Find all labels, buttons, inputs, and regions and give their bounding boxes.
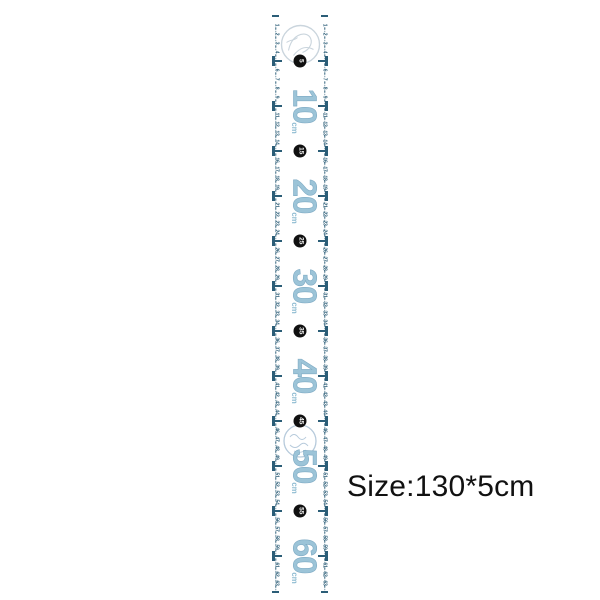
five-cm-tick-stem bbox=[318, 510, 326, 513]
five-cm-tick-stem bbox=[318, 330, 326, 333]
five-cm-circle-marker: 5 bbox=[294, 55, 307, 68]
edge-cm-number: 7 bbox=[274, 78, 279, 80]
circle-marker-number: 15 bbox=[297, 147, 304, 154]
circle-marker-number: 45 bbox=[297, 417, 304, 424]
five-cm-tick-stem bbox=[274, 285, 282, 288]
five-cm-circle-marker: 15 bbox=[294, 145, 307, 158]
five-cm-tick-crossbar bbox=[325, 146, 328, 156]
five-cm-circle-marker: 25 bbox=[294, 235, 307, 248]
five-cm-circle-marker: 35 bbox=[294, 325, 307, 338]
circle-marker-number: 55 bbox=[297, 507, 304, 514]
five-cm-tick-crossbar bbox=[325, 461, 328, 471]
five-cm-circle-marker: 45 bbox=[294, 415, 307, 428]
five-cm-tick-stem bbox=[274, 465, 282, 468]
size-label: Size:130*5cm bbox=[347, 472, 535, 502]
big-cm-number: 20 bbox=[289, 179, 322, 214]
five-cm-tick-stem bbox=[274, 420, 282, 423]
edge-cm-number: 1 bbox=[274, 24, 279, 26]
five-cm-tick-stem bbox=[274, 330, 282, 333]
big-cm-number: 60 bbox=[289, 539, 322, 574]
five-cm-tick-stem bbox=[318, 240, 326, 243]
edge-cm-number: 6 bbox=[322, 69, 327, 71]
edge-cm-number: 2 bbox=[274, 33, 279, 35]
five-cm-tick-crossbar bbox=[325, 551, 328, 561]
five-cm-tick-stem bbox=[274, 195, 282, 198]
five-cm-tick-crossbar bbox=[325, 191, 328, 201]
five-cm-tick-crossbar bbox=[325, 506, 328, 516]
cm-unit-label: cm bbox=[290, 482, 298, 494]
five-cm-tick-stem bbox=[318, 420, 326, 423]
edge-cm-number: 3 bbox=[322, 42, 327, 44]
circle-marker-number: 5 bbox=[297, 59, 304, 63]
cm-unit-label: cm bbox=[290, 572, 298, 584]
five-cm-tick-stem bbox=[274, 60, 282, 63]
cm-unit-label: cm bbox=[290, 122, 298, 134]
big-cm-number: 30 bbox=[289, 269, 322, 304]
strip-end-tick bbox=[321, 15, 328, 17]
edge-cm-number: 4 bbox=[274, 51, 279, 53]
five-cm-circle-marker: 55 bbox=[294, 505, 307, 518]
circle-marker-number: 25 bbox=[297, 237, 304, 244]
five-cm-tick-crossbar bbox=[325, 371, 328, 381]
edge-cm-number: 7 bbox=[322, 78, 327, 80]
edge-cm-number: 6 bbox=[274, 69, 279, 71]
big-cm-number: 10 bbox=[289, 89, 322, 124]
five-cm-tick-stem bbox=[318, 60, 326, 63]
strip-end-tick bbox=[272, 591, 279, 593]
cm-unit-label: cm bbox=[290, 392, 298, 404]
strip-end-tick bbox=[321, 591, 328, 593]
five-cm-tick-crossbar bbox=[325, 236, 328, 246]
five-cm-tick-stem bbox=[274, 150, 282, 153]
five-cm-tick-crossbar bbox=[325, 416, 328, 426]
five-cm-tick-crossbar bbox=[325, 56, 328, 66]
cm-unit-label: cm bbox=[290, 212, 298, 224]
ruler-strip: 1122334466778899111112121313141416161717… bbox=[269, 16, 331, 594]
five-cm-tick-stem bbox=[274, 105, 282, 108]
edge-cm-number: 8 bbox=[274, 87, 279, 89]
five-cm-tick-stem bbox=[274, 375, 282, 378]
five-cm-tick-crossbar bbox=[325, 281, 328, 291]
product-image: 1122334466778899111112121313141416161717… bbox=[0, 0, 600, 600]
edge-cm-number: 9 bbox=[274, 96, 279, 98]
circle-marker-number: 35 bbox=[297, 327, 304, 334]
big-cm-number: 40 bbox=[289, 359, 322, 394]
strip-end-tick bbox=[272, 15, 279, 17]
cm-unit-label: cm bbox=[290, 302, 298, 314]
edge-cm-number: 4 bbox=[322, 51, 327, 53]
five-cm-tick-stem bbox=[274, 240, 282, 243]
edge-cm-number: 2 bbox=[322, 33, 327, 35]
edge-cm-number: 1 bbox=[322, 24, 327, 26]
five-cm-tick-stem bbox=[274, 510, 282, 513]
edge-cm-number: 3 bbox=[274, 42, 279, 44]
big-cm-number: 50 bbox=[289, 449, 322, 484]
five-cm-tick-crossbar bbox=[325, 326, 328, 336]
five-cm-tick-crossbar bbox=[325, 101, 328, 111]
five-cm-tick-stem bbox=[318, 150, 326, 153]
five-cm-tick-stem bbox=[274, 555, 282, 558]
